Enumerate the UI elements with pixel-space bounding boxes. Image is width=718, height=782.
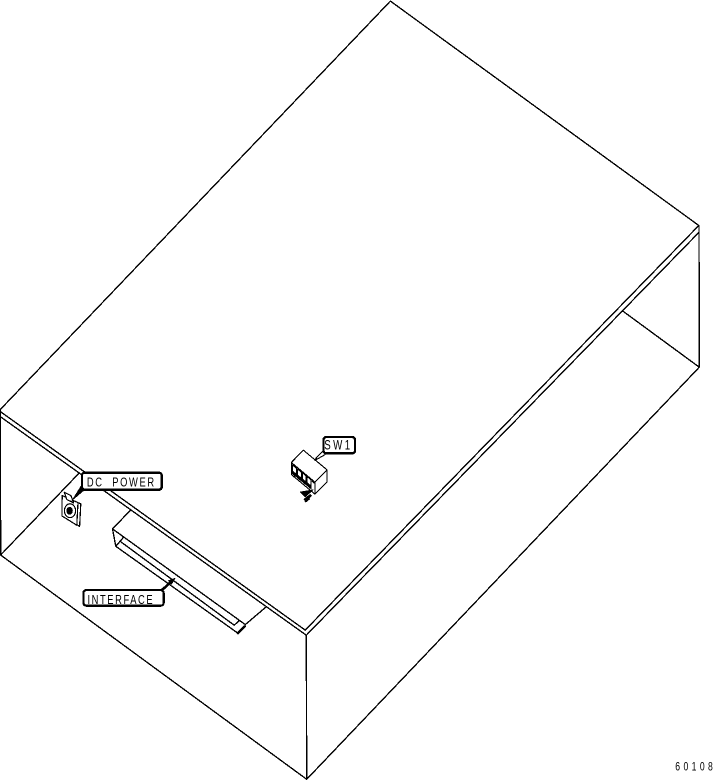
svg-text:DC POWER: DC POWER <box>87 476 156 490</box>
svg-text:INTERFACE: INTERFACE <box>88 594 155 608</box>
svg-text:SW1: SW1 <box>324 438 352 453</box>
svg-text:60108: 60108 <box>675 761 716 774</box>
